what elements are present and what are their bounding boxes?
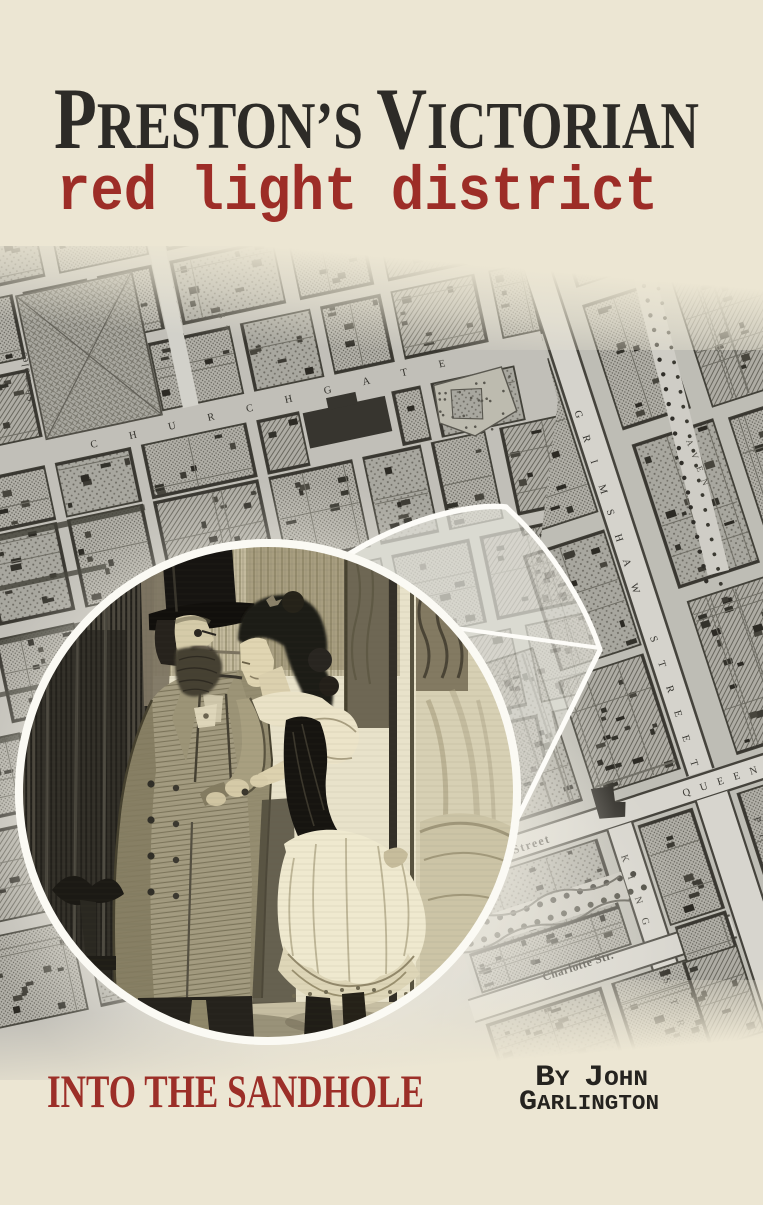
svg-text:red light district: red light district [57,157,658,228]
svg-text:INTO THE SANDHOLE: INTO THE SANDHOLE [47,1066,424,1118]
svg-text:PRESTON’S VICTORIAN: PRESTON’S VICTORIAN [54,71,699,168]
svg-text:BY JOHN: BY JOHN [535,1061,648,1095]
